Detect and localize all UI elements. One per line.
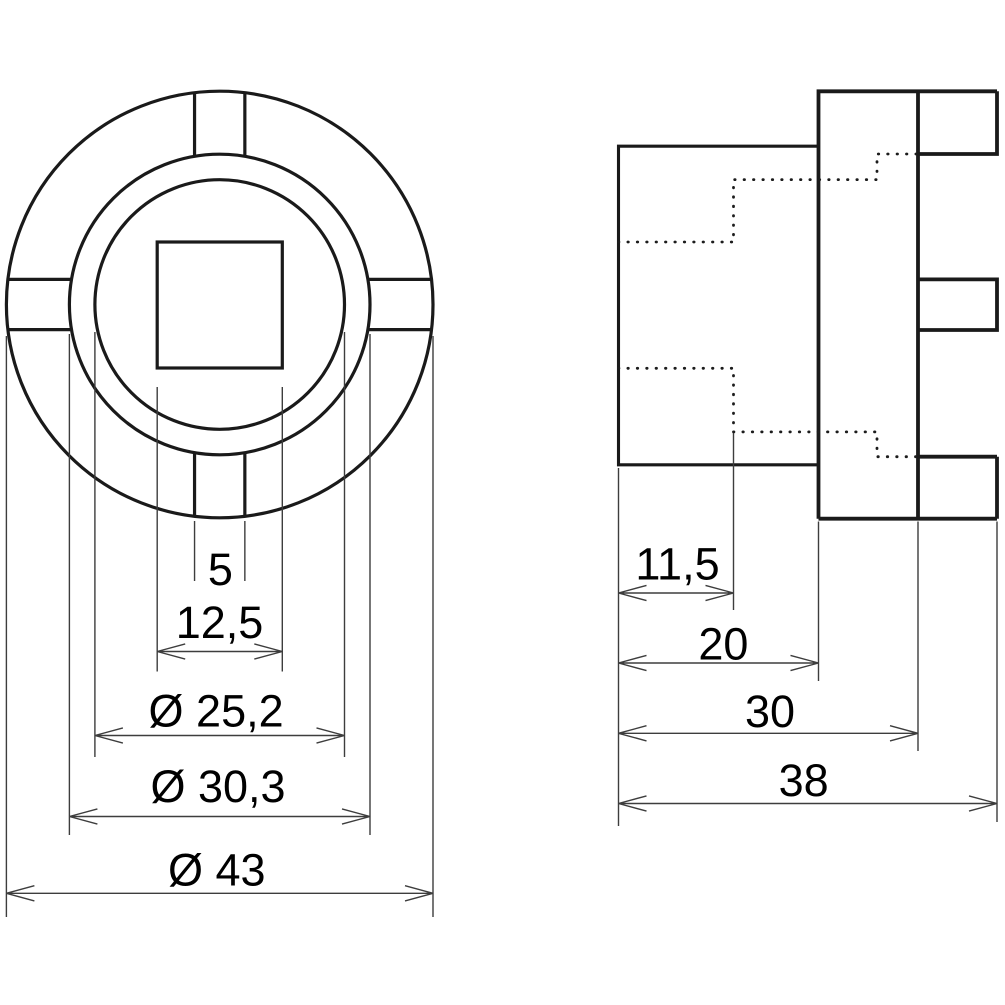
svg-text:12,5: 12,5 — [176, 597, 264, 648]
svg-text:Ø 25,2: Ø 25,2 — [149, 686, 284, 737]
svg-text:Ø 43: Ø 43 — [168, 844, 266, 895]
svg-text:30: 30 — [745, 686, 795, 737]
svg-text:11,5: 11,5 — [635, 538, 719, 589]
svg-text:38: 38 — [779, 755, 829, 806]
svg-text:20: 20 — [698, 619, 748, 670]
svg-text:5: 5 — [208, 544, 233, 595]
svg-text:Ø 30,3: Ø 30,3 — [150, 761, 285, 812]
